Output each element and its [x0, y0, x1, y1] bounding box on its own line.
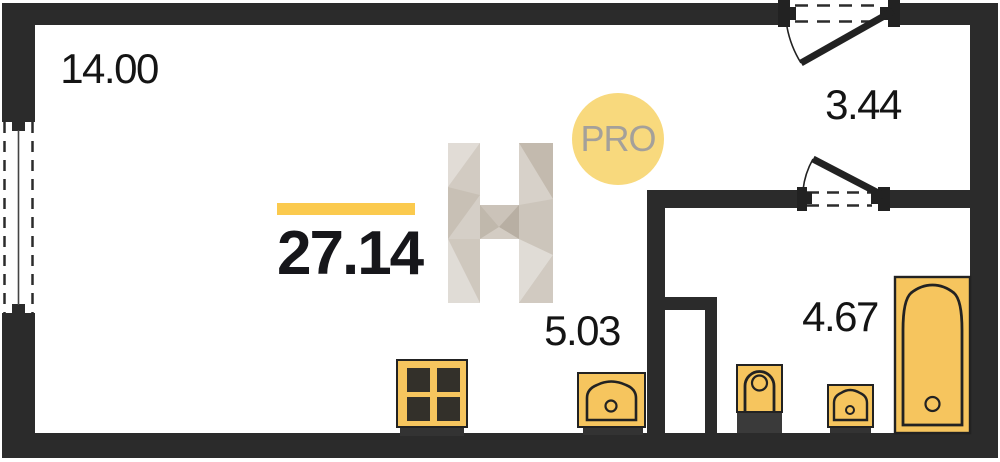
- living-room-area-label: 14.00: [60, 45, 158, 93]
- washbasin-icon: [828, 385, 873, 433]
- toilet-icon: [737, 365, 782, 433]
- window-icon: [2, 113, 35, 322]
- bathroom-area-label: 4.67: [802, 293, 878, 341]
- hallway-area-label: 3.44: [825, 81, 901, 129]
- kitchen-sink-icon: [578, 373, 645, 435]
- shaft-wall-right: [705, 297, 717, 433]
- stove-icon: [397, 360, 467, 436]
- kitchen-area-label: 5.03: [544, 307, 620, 355]
- total-area-block: 27.14: [277, 203, 422, 285]
- total-area-accent-bar: [277, 203, 415, 215]
- floorplan[interactable]: PRO: [0, 0, 1000, 462]
- entry-door-icon: [778, 0, 900, 63]
- total-area-value: 27.14: [277, 223, 422, 285]
- bathroom-door-icon: [797, 159, 890, 211]
- bathtub-icon: [895, 277, 970, 433]
